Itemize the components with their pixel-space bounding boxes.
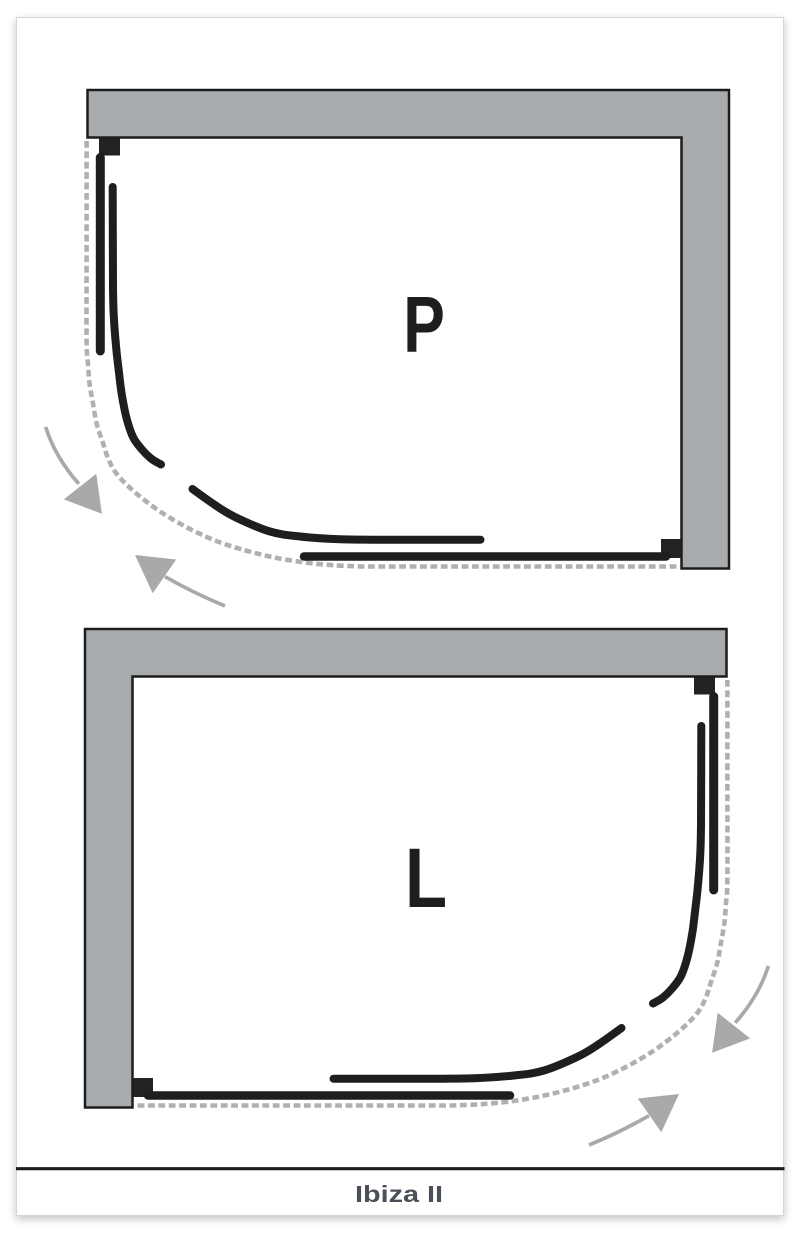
svg-text:P: P bbox=[403, 281, 445, 370]
svg-text:Ibiza II: Ibiza II bbox=[355, 1181, 443, 1207]
svg-text:L: L bbox=[405, 832, 447, 926]
